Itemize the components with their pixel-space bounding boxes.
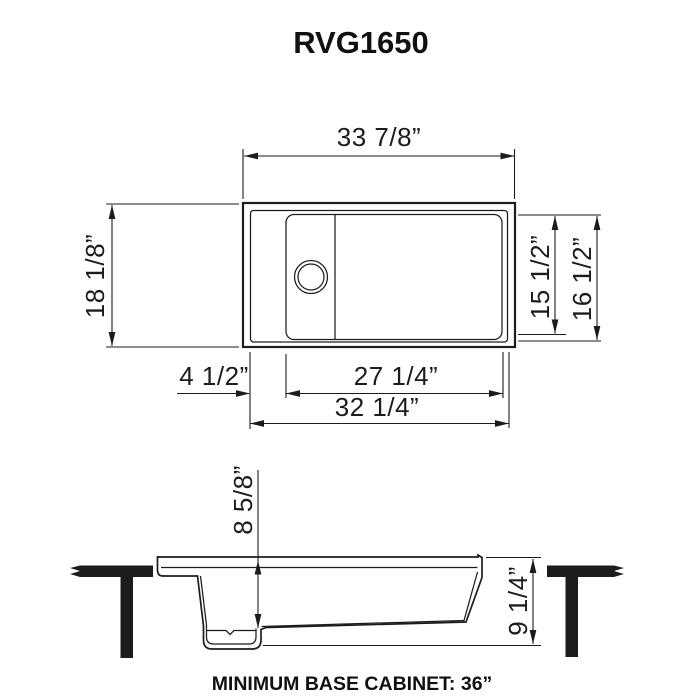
dimension-overall-height: 9 1/4” xyxy=(263,558,541,646)
dim-bowl-inner-depth-label: 15 1/2” xyxy=(525,235,555,319)
dim-overall-height-label: 9 1/4” xyxy=(503,566,533,636)
section-bowl-bottom-inner xyxy=(262,572,478,627)
model-title: RVG1650 xyxy=(293,25,429,60)
dimension-overall-depth: 18 1/8” xyxy=(80,204,239,347)
dim-bowl-depth-label: 8 5/8” xyxy=(228,465,258,535)
sink-bowl xyxy=(286,215,502,340)
dimension-bowl-depths: 15 1/2” 16 1/2” xyxy=(518,215,601,341)
drain-hole-inner xyxy=(298,264,324,290)
section-drain-mark xyxy=(207,631,257,635)
sink-top-view xyxy=(243,203,515,347)
dim-inner-rim-width-label: 32 1/4” xyxy=(335,392,419,422)
sink-inner-rim xyxy=(251,211,508,343)
dim-drainboard-width-label: 4 1/2” xyxy=(179,361,249,391)
sink-section-view xyxy=(70,555,624,659)
dim-bowl-outer-depth-label: 16 1/2” xyxy=(567,237,597,321)
dim-bowl-width-label: 27 1/4” xyxy=(354,361,438,391)
technical-drawing: RVG1650 33 7/8” 18 1/8” 15 1/2” xyxy=(0,0,700,700)
dimension-bottom-widths: 4 1/2” 27 1/4” 32 1/4” xyxy=(177,352,509,429)
drain-hole-outer xyxy=(295,261,328,294)
dimension-overall-width: 33 7/8” xyxy=(243,122,515,199)
sink-outer-rim xyxy=(243,203,515,347)
countertop-left xyxy=(70,566,153,578)
dimension-bowl-depth: 8 5/8” xyxy=(228,465,261,628)
dim-overall-width-label: 33 7/8” xyxy=(337,122,421,152)
cabinet-wall-right xyxy=(566,577,579,657)
cabinet-wall-left xyxy=(121,577,134,658)
section-drain-trap-inner xyxy=(201,576,257,644)
min-base-cabinet-note: MINIMUM BASE CABINET: 36” xyxy=(212,673,493,695)
spec-sheet: RVG1650 33 7/8” 18 1/8” 15 1/2” xyxy=(0,0,700,700)
countertop-right xyxy=(547,566,624,578)
dim-overall-depth-label: 18 1/8” xyxy=(80,234,110,318)
